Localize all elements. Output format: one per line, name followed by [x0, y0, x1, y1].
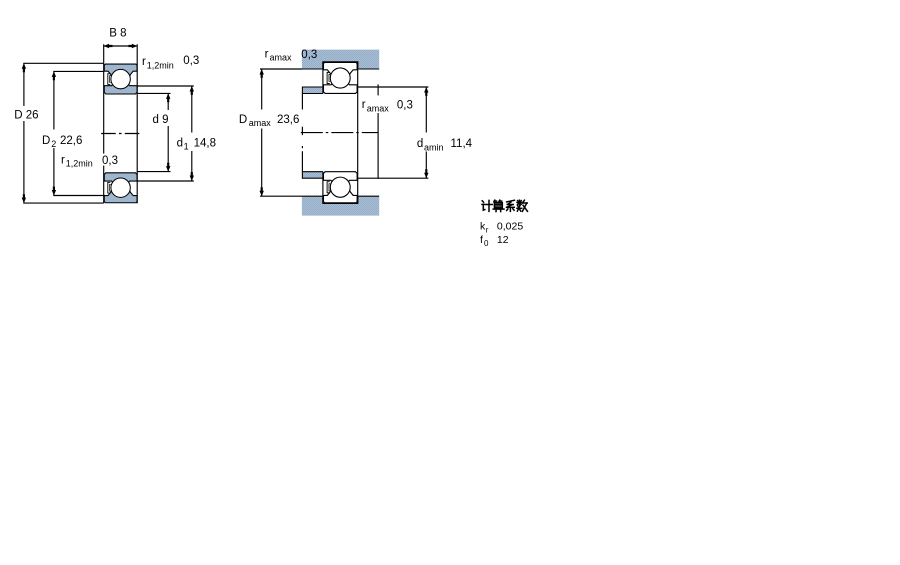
svg-text:B 8: B 8	[109, 28, 126, 40]
svg-text:r: r	[61, 155, 65, 167]
svg-text:23,6: 23,6	[277, 114, 299, 126]
svg-text:0: 0	[484, 239, 489, 248]
svg-text:22,6: 22,6	[60, 135, 82, 147]
svg-text:1,2min: 1,2min	[66, 159, 93, 169]
svg-text:amax: amax	[367, 104, 390, 114]
svg-text:0,025: 0,025	[497, 221, 523, 233]
svg-text:12: 12	[497, 234, 509, 246]
svg-text:0,3: 0,3	[301, 49, 317, 61]
svg-text:r: r	[362, 99, 366, 111]
svg-text:d: d	[417, 138, 423, 150]
svg-text:0,3: 0,3	[183, 55, 199, 67]
svg-text:r: r	[265, 49, 269, 61]
svg-text:1: 1	[184, 142, 189, 152]
svg-text:0,3: 0,3	[397, 100, 413, 112]
svg-text:f: f	[480, 234, 483, 246]
svg-text:D: D	[42, 135, 50, 147]
svg-text:amax: amax	[249, 118, 272, 128]
svg-text:D: D	[239, 114, 247, 126]
svg-text:1,2min: 1,2min	[147, 61, 174, 71]
svg-text:D 26: D 26	[14, 110, 38, 122]
svg-text:amax: amax	[270, 53, 293, 63]
svg-text:d: d	[177, 138, 183, 150]
svg-text:14,8: 14,8	[194, 138, 216, 150]
svg-text:r: r	[142, 56, 146, 68]
svg-text:amin: amin	[424, 143, 444, 153]
svg-text:2: 2	[51, 139, 56, 149]
svg-text:r: r	[486, 226, 489, 235]
svg-text:11,4: 11,4	[451, 138, 473, 150]
svg-text:0,3: 0,3	[102, 155, 118, 167]
svg-text:d 9: d 9	[153, 114, 169, 126]
